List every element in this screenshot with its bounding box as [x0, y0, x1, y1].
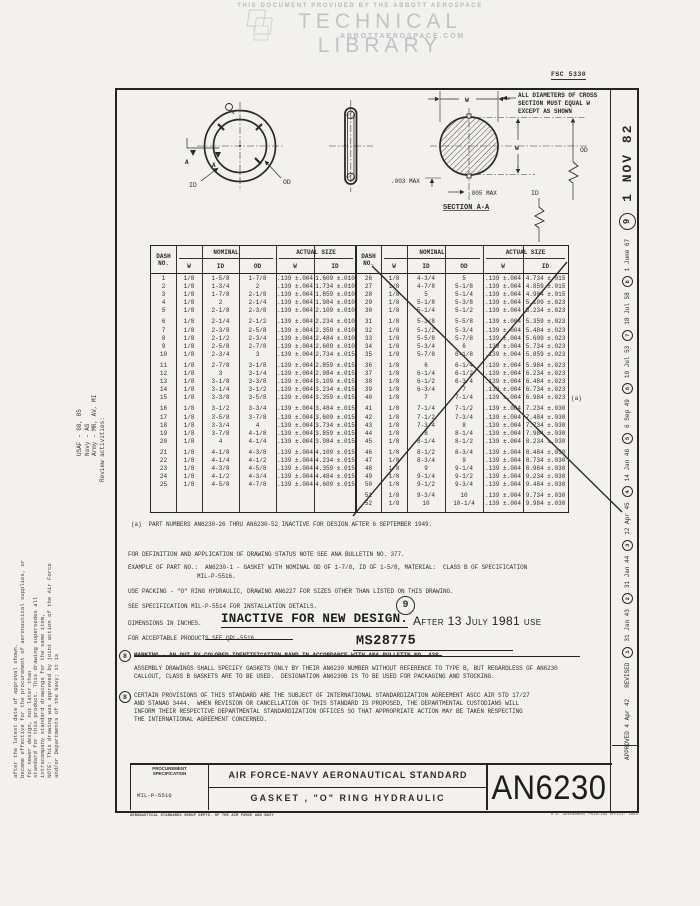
table-cell: .139 ±.004 — [276, 362, 314, 370]
table-cell: 4-1/2 — [239, 457, 276, 465]
table-body-left: 11/81-5/81-7/8.139 ±.0041.609 ±.01021/81… — [151, 275, 356, 489]
table-cell: 48 — [356, 465, 381, 473]
table-cell: .139 ±.004 — [483, 283, 523, 291]
table-cell: .139 ±.004 — [276, 438, 314, 446]
table-cell: 36 — [356, 362, 381, 370]
table-cell: .139 ±.004 — [483, 500, 523, 508]
table-cell: 2 — [151, 283, 176, 291]
fsc-number: FSC 5330 — [551, 71, 586, 80]
table-cell: 6.234 ±.023 — [523, 370, 568, 378]
table-cell: 1/8 — [381, 299, 407, 307]
section-id-label: ID — [531, 190, 539, 197]
col-header-w: W — [381, 263, 407, 270]
table-cell: 7-1/2 — [445, 405, 483, 413]
table-row: 451/88-1/48-1/2.139 ±.0048.234 ±.030 — [356, 438, 568, 446]
table-cell: 3-1/2 — [202, 405, 239, 413]
table-cell: 5.109 ±.023 — [523, 299, 568, 307]
table-cell: .139 ±.004 — [276, 275, 314, 283]
table-cell: 5.359 ±.023 — [523, 318, 568, 326]
revision-date: 10 Jul 53 — [624, 346, 631, 378]
table-cell: 6-1/8 — [445, 351, 483, 359]
table-cell: .139 ±.004 — [483, 299, 523, 307]
table-cell: 1/8 — [176, 351, 202, 359]
table-row: 331/85-5/85-7/8.139 ±.0045.609 ±.023 — [356, 335, 568, 343]
table-cell: 10 — [151, 351, 176, 359]
table-cell: 4.859 ±.015 — [523, 283, 568, 291]
table-cell: 3.359 ±.015 — [314, 394, 356, 402]
table-cell: 35 — [356, 351, 381, 359]
revision-date: 6 Sep 49 — [624, 399, 631, 428]
table-cell: 6.484 ±.023 — [523, 378, 568, 386]
flash-max-label: .003 MAX — [391, 178, 420, 185]
table-cell: .139 ±.004 — [276, 291, 314, 299]
revision-date: 12 Apr 45 — [624, 502, 631, 534]
oring-diagrams: A A ID OD — [115, 88, 639, 250]
table-cell: .139 ±.004 — [276, 307, 314, 315]
review-activities-margin: Review activities: Army – MR, AV, MI Nav… — [76, 324, 106, 482]
table-row: 221/84-1/44-1/2.139 ±.0044.234 ±.015 — [151, 457, 356, 465]
table-cell: 9 — [407, 465, 445, 473]
table-cell: 6-1/2 — [407, 378, 445, 386]
table-cell: 3.859 ±.015 — [314, 430, 356, 438]
table-cell: 5-1/8 — [407, 299, 445, 307]
review-activities-item: USAF – 68, 85 — [76, 324, 84, 482]
table-row: 391/86-3/47.139 ±.0046.734 ±.023 — [356, 386, 568, 394]
table-cell: .139 ±.004 — [483, 430, 523, 438]
table-cell: 5-1/4 — [407, 307, 445, 315]
table-cell: 39 — [356, 386, 381, 394]
table-cell: 4-3/4 — [407, 275, 445, 283]
diagram-note-line3: EXCEPT AS SHOWN — [518, 108, 572, 115]
table-cell: .139 ±.004 — [483, 327, 523, 335]
revision-number-badge: 3 — [622, 540, 633, 551]
table-cell: 1/8 — [381, 283, 407, 291]
table-row: 381/86-1/26-3/4.139 ±.0046.484 ±.023 — [356, 378, 568, 386]
table-cell: .139 ±.004 — [276, 422, 314, 430]
table-cell: 8-1/4 — [407, 438, 445, 446]
footer-left-imprint: AERONAUTICAL STANDARDS GROUP DEPTS. OF T… — [130, 814, 274, 818]
table-cell: .139 ±.004 — [276, 351, 314, 359]
table-cell: 2-5/8 — [239, 327, 276, 335]
table-cell: 5.609 ±.023 — [523, 335, 568, 343]
table-cell: 19 — [151, 430, 176, 438]
table-cell: 2.109 ±.010 — [314, 307, 356, 315]
table-row: 401/877-1/4.139 ±.0046.984 ±.023 — [356, 394, 568, 402]
table-cell: 25 — [151, 481, 176, 489]
table-cell: 5-5/8 — [407, 335, 445, 343]
table-row: 431/87-3/48.139 ±.0047.734 ±.030 — [356, 422, 568, 430]
table-cell: 1/8 — [176, 405, 202, 413]
table-cell: 3.109 ±.015 — [314, 378, 356, 386]
table-cell: .139 ±.004 — [276, 370, 314, 378]
table-cell: .139 ±.004 — [483, 307, 523, 315]
table-cell: 41 — [356, 405, 381, 413]
table-cell: 5.984 ±.023 — [523, 362, 568, 370]
table-cell: 6 — [407, 362, 445, 370]
note-assembly-line1: ASSEMBLY DRAWINGS SHALL SPECIFY GASKETS … — [134, 665, 558, 672]
table-cell: 8-3/4 — [407, 457, 445, 465]
revision-date: 18 Jul 58 — [624, 292, 631, 324]
group-header-nominal: NOMINAL — [176, 249, 276, 256]
table-row: 131/83-1/83-3/8.139 ±.0043.109 ±.015 — [151, 378, 356, 386]
col-header-w: W — [176, 263, 202, 270]
table-row: 71/82-3/82-5/8.139 ±.0042.359 ±.010 — [151, 327, 356, 335]
table-cell: 47 — [356, 457, 381, 465]
table-cell: 9 — [445, 457, 483, 465]
revision-date: 1 June 67 — [624, 239, 631, 271]
table-cell: 1/8 — [381, 275, 407, 283]
table-row: 171/83-5/83-7/8.139 ±.0043.609 ±.015 — [151, 414, 356, 422]
review-activities-header: Review activities: — [99, 324, 107, 482]
table-cell: 1/8 — [176, 362, 202, 370]
table-cell: 2.609 ±.010 — [314, 343, 356, 351]
table-cell: 6.734 ±.023 — [523, 386, 568, 394]
table-row: 291/85-1/85-3/8.139 ±.0045.109 ±.023 — [356, 299, 568, 307]
table-cell: 2.859 ±.015 — [314, 362, 356, 370]
title-block-border — [130, 763, 612, 765]
table-cell: 1.984 ±.010 — [314, 299, 356, 307]
table-cell: .139 ±.004 — [483, 318, 523, 326]
table-body-right: 261/84-3/45.139 ±.0044.734 ±.015271/84-7… — [356, 275, 568, 509]
table-cell: .139 ±.004 — [483, 370, 523, 378]
revised-label: REVISED — [624, 663, 631, 688]
table-row: 211/84-1/84-3/8.139 ±.0044.109 ±.015 — [151, 449, 356, 457]
table-cell: 2.484 ±.010 — [314, 335, 356, 343]
table-cell: .139 ±.004 — [483, 386, 523, 394]
table-cell: 1.609 ±.010 — [314, 275, 356, 283]
note-8-badge: 8 — [119, 650, 131, 662]
table-cell: 2.359 ±.010 — [314, 327, 356, 335]
table-cell: .139 ±.004 — [483, 449, 523, 457]
after-date-stamp: After 13 July 1981 use — [413, 614, 542, 628]
revision-number-badge: 2 — [622, 593, 633, 604]
table-cell: 50 — [356, 481, 381, 489]
table-row: 61/82-1/42-1/2.139 ±.0042.234 ±.010 — [151, 318, 356, 326]
table-cell: 20 — [151, 438, 176, 446]
table-cell: 17 — [151, 414, 176, 422]
table-cell: 1/8 — [381, 343, 407, 351]
table-cell: 29 — [356, 299, 381, 307]
table-cell: 8.234 ±.030 — [523, 438, 568, 446]
table-cell: 8-3/4 — [445, 449, 483, 457]
table-cell: 5 — [407, 291, 445, 299]
front-od-label: OD — [283, 179, 291, 186]
table-row: 361/866-1/4.139 ±.0045.984 ±.023 — [356, 362, 568, 370]
table-cell: 4-1/8 — [239, 430, 276, 438]
table-cell: 1/8 — [176, 343, 202, 351]
table-cell: 6-3/4 — [407, 386, 445, 394]
table-cell: 1/8 — [381, 414, 407, 422]
table-cell: 45 — [356, 438, 381, 446]
table-cell: .139 ±.004 — [276, 473, 314, 481]
watermark-provider-line: THIS DOCUMENT PROVIDED BY THE ABBOTT AER… — [215, 3, 505, 9]
table-cell: 52 — [356, 500, 381, 508]
ms-number-stamp: MS28775 — [356, 634, 416, 650]
table-cell: 9.234 ±.030 — [523, 473, 568, 481]
revision-number-badge: 8 — [622, 276, 633, 287]
revision-number-badge: 4 — [622, 486, 633, 497]
note-definition: FOR DEFINITION AND APPLICATION OF DRAWIN… — [128, 551, 405, 558]
col-header-od: OD — [445, 263, 483, 270]
section-cut-letter-a-left: A — [185, 159, 189, 166]
table-cell: 8 — [151, 335, 176, 343]
note-spec: SEE SPECIFICATION MIL-P-5514 FOR INSTALL… — [128, 603, 317, 610]
table-cell: 11 — [151, 362, 176, 370]
table-cell: 4.609 ±.015 — [314, 481, 356, 489]
table-row: 21/81-3/42.139 ±.0041.734 ±.010 — [151, 283, 356, 291]
table-row: 311/85-3/85-5/8.139 ±.0045.359 ±.023 — [356, 318, 568, 326]
table-cell: 7-3/4 — [407, 422, 445, 430]
table-cell: .139 ±.004 — [276, 335, 314, 343]
table-cell: 7 — [151, 327, 176, 335]
table-cell: 9-3/4 — [445, 481, 483, 489]
revision-number-badge: 5 — [622, 433, 633, 444]
table-row: 461/88-1/28-3/4.139 ±.0048.484 ±.030 — [356, 449, 568, 457]
table-cell: 3.234 ±.015 — [314, 386, 356, 394]
table-cell: .139 ±.004 — [276, 343, 314, 351]
table-cell: 14 — [151, 386, 176, 394]
footer-right-imprint: U.S. GOVERNMENT PRINTING OFFICE: 1983 — [490, 813, 638, 817]
table-cell: 6-1/4 — [445, 362, 483, 370]
table-cell: .139 ±.004 — [483, 438, 523, 446]
stamp-underline — [353, 650, 513, 651]
note-8-badge: 8 — [119, 691, 131, 703]
table-cell: 15 — [151, 394, 176, 402]
table-cell: 3-3/8 — [202, 394, 239, 402]
table-cell: 4-1/4 — [202, 457, 239, 465]
table-cell: 6-3/4 — [445, 378, 483, 386]
table-cell: 1/8 — [176, 370, 202, 378]
table-cell: .139 ±.004 — [276, 283, 314, 291]
revision-date: 31 Jan 43 — [624, 609, 631, 641]
col-header-dash: DASHNO. — [356, 253, 381, 267]
table-cell: 16 — [151, 405, 176, 413]
table-cell: 5.484 ±.023 — [523, 327, 568, 335]
table-row: 321/85-1/25-3/4.139 ±.0045.484 ±.023 — [356, 327, 568, 335]
table-row: 11/81-5/81-7/8.139 ±.0041.609 ±.010 — [151, 275, 356, 283]
table-cell: 4.984 ±.015 — [523, 291, 568, 299]
table-row: 111/82-7/83-1/8.139 ±.0042.859 ±.015 — [151, 362, 356, 370]
table-row: 501/89-1/29-3/4.139 ±.0049.484 ±.030 — [356, 481, 568, 489]
table-cell: 8 — [445, 422, 483, 430]
table-cell: 3.609 ±.015 — [314, 414, 356, 422]
table-row: 261/84-3/45.139 ±.0044.734 ±.015 — [356, 275, 568, 283]
table-cell: 4-1/4 — [239, 438, 276, 446]
table-cell: 1/8 — [176, 378, 202, 386]
note-footnote-a: (a) PART NUMBERS AN6230-26 THRU AN6230-5… — [131, 521, 432, 528]
table-cell: 6 — [151, 318, 176, 326]
table-cell: 3 — [151, 291, 176, 299]
table-cell: 5 — [445, 275, 483, 283]
table-cell: 1/8 — [381, 422, 407, 430]
table-cell: 13 — [151, 378, 176, 386]
table-cell: 9-1/4 — [407, 473, 445, 481]
table-row: 301/85-1/45-1/2.139 ±.0045.234 ±.023 — [356, 307, 568, 315]
table-cell: 37 — [356, 370, 381, 378]
current-revision-badge: 9 — [619, 213, 636, 230]
offset-max-label: .005 MAX — [468, 190, 497, 197]
revision-date: 31 Jan 44 — [624, 556, 631, 588]
table-cell: 4.484 ±.015 — [314, 473, 356, 481]
note-assembly-line2: CALLOUT, CLASS B GASKETS ARE TO BE USED.… — [134, 673, 495, 680]
table-cell: .139 ±.004 — [276, 449, 314, 457]
table-cell: 44 — [356, 430, 381, 438]
table-cell: 5-1/2 — [445, 307, 483, 315]
marking-strike-bar — [134, 656, 580, 657]
table-cell: 2-5/8 — [202, 343, 239, 351]
table-footnote-ref: (a) — [571, 395, 582, 402]
table-cell: 28 — [356, 291, 381, 299]
table-cell: 6-1/2 — [445, 370, 483, 378]
table-cell: 3-3/8 — [239, 378, 276, 386]
table-cell: 1/8 — [381, 394, 407, 402]
table-cell: 1/8 — [381, 318, 407, 326]
table-cell: 42 — [356, 414, 381, 422]
table-cell: 1/8 — [176, 299, 202, 307]
table-cell: 12 — [151, 370, 176, 378]
table-cell: 21 — [151, 449, 176, 457]
table-cell: 2 — [239, 283, 276, 291]
table-cell: .139 ±.004 — [483, 275, 523, 283]
table-cell: .139 ±.004 — [276, 327, 314, 335]
table-cell: .139 ±.004 — [276, 394, 314, 402]
table-cell: .139 ±.004 — [483, 492, 523, 500]
review-activities-item: Army – MR, AV, MI — [91, 324, 99, 482]
table-cell: 2-3/8 — [239, 307, 276, 315]
table-cell: 9.984 ±.030 — [523, 500, 568, 508]
table-row: 41/822-1/4.139 ±.0041.984 ±.010 — [151, 299, 356, 307]
table-row: 371/86-1/46-1/2.139 ±.0046.234 ±.023 — [356, 370, 568, 378]
table-cell: 1/8 — [176, 430, 202, 438]
revision-number-badge: 1 — [622, 647, 633, 658]
table-cell: 9.734 ±.030 — [523, 492, 568, 500]
scanned-document-page: THIS DOCUMENT PROVIDED BY THE ABBOTT AER… — [0, 0, 700, 906]
table-cell: 5-1/8 — [445, 283, 483, 291]
table-cell: .139 ±.004 — [483, 394, 523, 402]
acceptable-strike-bar — [205, 639, 293, 640]
table-cell: .139 ±.004 — [483, 405, 523, 413]
table-cell: 2-3/4 — [202, 351, 239, 359]
table-cell: 4 — [151, 299, 176, 307]
table-cell: 5-1/4 — [445, 291, 483, 299]
table-row: 341/85-3/46.139 ±.0045.734 ±.023 — [356, 343, 568, 351]
table-cell: 3-1/4 — [239, 370, 276, 378]
table-row: 421/87-1/27-3/4.139 ±.0047.484 ±.030 — [356, 414, 568, 422]
table-cell: 2-1/2 — [239, 318, 276, 326]
table-row: 481/899-1/4.139 ±.0048.984 ±.030 — [356, 465, 568, 473]
table-cell: 3 — [202, 370, 239, 378]
table-cell: 4-7/8 — [407, 283, 445, 291]
table-cell: 2.734 ±.015 — [314, 351, 356, 359]
oring-side-view — [329, 100, 373, 192]
inactive-stamp: INACTIVE FOR NEW DESIGN. — [221, 612, 408, 628]
table-cell: 1/8 — [176, 291, 202, 299]
approval-note-line: become effective for the procurement of … — [20, 556, 34, 778]
note-example-line1: EXAMPLE OF PART NO.: AN6230-1 - GASKET W… — [128, 564, 527, 571]
table-cell: 5.734 ±.023 — [523, 343, 568, 351]
table-cell: 1/8 — [381, 307, 407, 315]
table-cell: 1/8 — [381, 492, 407, 500]
table-cell: 38 — [356, 378, 381, 386]
table-cell: 1-7/8 — [239, 275, 276, 283]
standard-title: AIR FORCE-NAVY AERONAUTICAL STANDARD — [209, 770, 487, 780]
col-header-actual-id: ID — [523, 263, 568, 270]
procurement-spec-value: MIL-P-5516 — [137, 792, 172, 799]
table-row: 161/83-1/23-3/4.139 ±.0043.484 ±.015 — [151, 405, 356, 413]
table-cell: 1/8 — [381, 291, 407, 299]
table-cell: 3 — [239, 351, 276, 359]
table-cell: 7.984 ±.030 — [523, 430, 568, 438]
table-cell: .139 ±.004 — [483, 343, 523, 351]
table-cell: 24 — [151, 473, 176, 481]
table-cell: 4 — [239, 422, 276, 430]
table-cell: 5-3/4 — [407, 343, 445, 351]
procurement-spec-label: PROCUREMENT SPECIFICATION — [131, 766, 208, 777]
table-cell: 1/8 — [381, 500, 407, 508]
table-cell: 5-5/8 — [445, 318, 483, 326]
table-cell: 3-7/8 — [202, 430, 239, 438]
table-row: 151/83-3/83-5/8.139 ±.0043.359 ±.015 — [151, 394, 356, 402]
table-cell: 6-1/4 — [407, 370, 445, 378]
table-cell: 40 — [356, 394, 381, 402]
table-cell: 9-1/4 — [445, 465, 483, 473]
table-cell: 1-5/8 — [202, 275, 239, 283]
table-cell: 1/8 — [381, 378, 407, 386]
group-header-actual: ACTUAL SIZE — [276, 249, 356, 256]
table-cell: 1/8 — [381, 351, 407, 359]
table-cell: 3-1/2 — [239, 386, 276, 394]
col-header-id: ID — [202, 263, 239, 270]
col-header-actual-id: ID — [314, 263, 356, 270]
table-cell: 2-7/8 — [202, 362, 239, 370]
table-cell: 2-1/4 — [202, 318, 239, 326]
col-header-id: ID — [407, 263, 445, 270]
table-cell: 1/8 — [381, 449, 407, 457]
table-cell: 4.234 ±.015 — [314, 457, 356, 465]
table-cell: 8.984 ±.030 — [523, 465, 568, 473]
table-cell: .139 ±.004 — [276, 481, 314, 489]
table-cell: 1/8 — [176, 422, 202, 430]
table-cell: 3.484 ±.015 — [314, 405, 356, 413]
note-dimensions: DIMENSIONS IN INCHES. — [128, 620, 202, 627]
col-header-dash: DASHNO. — [151, 253, 176, 267]
table-cell: 1/8 — [381, 386, 407, 394]
table-cell: 1/8 — [176, 335, 202, 343]
table-cell: .139 ±.004 — [483, 422, 523, 430]
table-cell: 2-1/2 — [202, 335, 239, 343]
table-cell: 22 — [151, 457, 176, 465]
table-cell: 1/8 — [381, 473, 407, 481]
table-cell: 3-7/8 — [239, 414, 276, 422]
table-cell: .139 ±.004 — [276, 378, 314, 386]
table-cell: 2-1/8 — [202, 307, 239, 315]
table-cell: 7-1/2 — [407, 414, 445, 422]
table-cell: 1/8 — [381, 481, 407, 489]
front-id-label: ID — [189, 182, 197, 189]
col-header-od: OD — [239, 263, 276, 270]
table-cell: 8.734 ±.030 — [523, 457, 568, 465]
table-cell: 1/8 — [381, 405, 407, 413]
table-cell: 3.734 ±.015 — [314, 422, 356, 430]
table-cell: .139 ±.004 — [483, 335, 523, 343]
table-cell: 2-7/8 — [239, 343, 276, 351]
table-cell: 3-1/4 — [202, 386, 239, 394]
table-cell: 30 — [356, 307, 381, 315]
table-cell: 2.234 ±.010 — [314, 318, 356, 326]
table-cell: .139 ±.004 — [483, 378, 523, 386]
table-cell: 3-5/8 — [202, 414, 239, 422]
table-row: 241/84-1/24-3/4.139 ±.0044.484 ±.015 — [151, 473, 356, 481]
